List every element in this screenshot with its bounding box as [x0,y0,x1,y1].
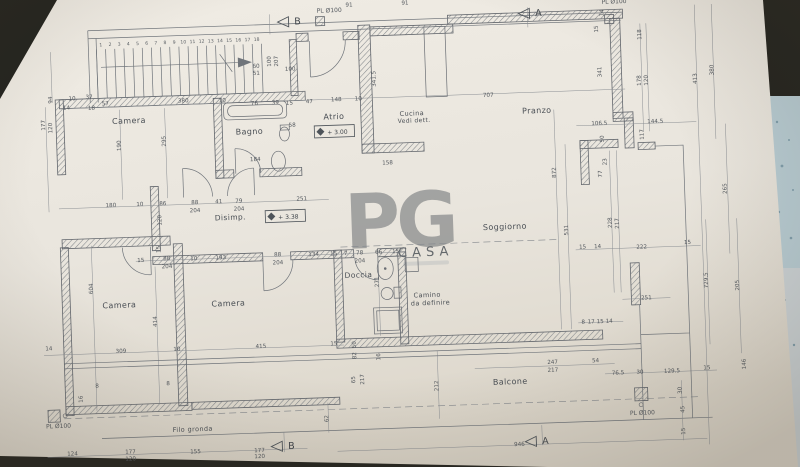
photo-vignette [0,0,800,467]
floor-plan-photo: PG CASA [0,0,800,467]
floorplan-svg: PG CASA [0,0,800,467]
